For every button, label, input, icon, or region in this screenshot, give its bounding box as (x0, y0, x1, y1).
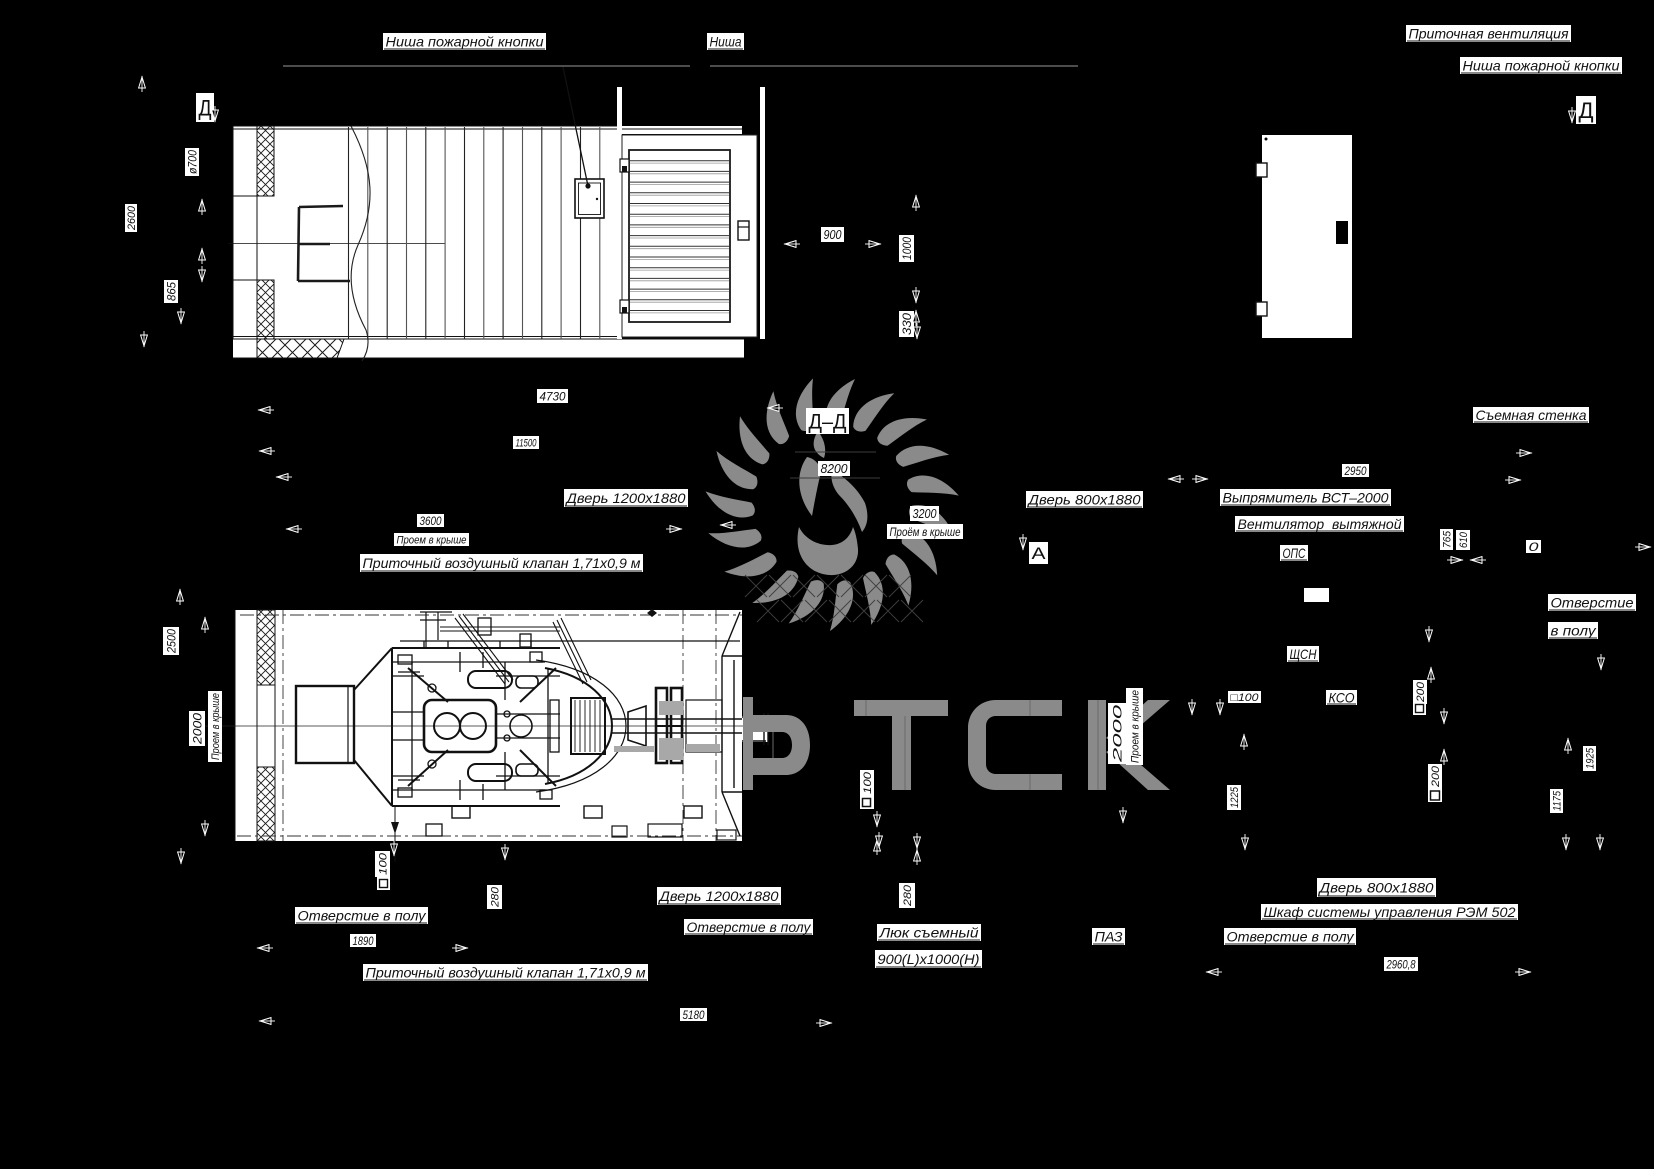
svg-text:Отверстие в полу: Отверстие в полу (1227, 929, 1355, 945)
svg-text:КСО: КСО (1329, 690, 1355, 706)
svg-text:ЩСН: ЩСН (1290, 646, 1318, 662)
svg-text:4730: 4730 (540, 389, 566, 403)
svg-text:3600: 3600 (420, 514, 442, 528)
svg-text:□100: □100 (1231, 692, 1260, 704)
svg-text:900(L)х1000(Н): 900(L)х1000(Н) (878, 951, 980, 967)
svg-text:280: 280 (490, 886, 502, 908)
svg-text:в полу: в полу (1551, 623, 1597, 639)
svg-text:100: 100 (862, 771, 874, 794)
svg-text:2000: 2000 (1110, 704, 1124, 764)
svg-text:1225: 1225 (1229, 786, 1241, 808)
svg-text:Вентилятор вытяжной: Вентилятор вытяжной (1238, 516, 1402, 532)
svg-text:Отверстие в полу: Отверстие в полу (687, 919, 812, 935)
svg-text:Отверстие: Отверстие (1551, 595, 1634, 611)
svg-text:2500: 2500 (164, 629, 178, 654)
svg-text:Приточный воздушный клапан 1,7: Приточный воздушный клапан 1,71х0,9 м (363, 555, 641, 571)
svg-text:Дверь 1200х1880: Дверь 1200х1880 (564, 490, 685, 506)
svg-text:А: А (1032, 544, 1047, 563)
svg-text:ø700: ø700 (185, 150, 199, 174)
svg-text:Дверь 800х1880: Дверь 800х1880 (1317, 880, 1433, 896)
svg-text:Д: Д (1579, 98, 1594, 123)
svg-text:200: 200 (1415, 681, 1427, 703)
svg-text:5180: 5180 (683, 1008, 705, 1022)
svg-text:280: 280 (902, 884, 914, 907)
svg-text:1925: 1925 (1585, 747, 1597, 769)
svg-text:Ниша пожарной кнопки: Ниша пожарной кнопки (1463, 58, 1620, 74)
svg-text:Д: Д (199, 95, 212, 120)
svg-text:Проём в крыше: Проём в крыше (890, 525, 961, 539)
svg-text:Дверь 800х1880: Дверь 800х1880 (1026, 492, 1140, 508)
svg-text:Проем в крыше: Проем в крыше (397, 535, 467, 547)
svg-text:2960,8: 2960,8 (1386, 957, 1416, 971)
svg-text:ПАЗ: ПАЗ (1095, 929, 1123, 945)
svg-text:Люк съемный: Люк съемный (878, 925, 978, 941)
svg-text:ОПС: ОПС (1283, 545, 1307, 561)
svg-text:Д–Д: Д–Д (809, 411, 847, 434)
svg-text:Проем в крыше: Проем в крыше (1130, 690, 1142, 763)
svg-text:Приточная вентиляция: Приточная вентиляция (1409, 26, 1570, 42)
svg-text:1890: 1890 (353, 934, 374, 948)
svg-text:Приточный воздушный клапан 1,7: Приточный воздушный клапан 1,71х0,9 м (366, 965, 646, 981)
svg-text:1175: 1175 (1552, 790, 1564, 811)
svg-text:Съемная стенка: Съемная стенка (1476, 407, 1587, 423)
svg-text:8200: 8200 (821, 461, 849, 476)
svg-text:900: 900 (824, 227, 843, 242)
svg-text:11500: 11500 (516, 438, 538, 450)
svg-text:Отверстие в полу: Отверстие в полу (298, 908, 427, 924)
svg-text:2000: 2000 (190, 713, 204, 746)
svg-text:Дверь 1200х1880: Дверь 1200х1880 (657, 888, 778, 904)
svg-text:330: 330 (900, 313, 914, 335)
svg-text:0: 0 (1529, 540, 1539, 554)
svg-text:Проем в крыше: Проем в крыше (210, 693, 222, 760)
svg-text:2950: 2950 (1344, 464, 1367, 478)
svg-text:Выпрямитель ВСТ–2000: Выпрямитель ВСТ–2000 (1223, 490, 1389, 506)
svg-text:2600: 2600 (126, 205, 138, 231)
svg-text:Шкаф системы управления РЭМ 50: Шкаф системы управления РЭМ 502 (1264, 904, 1516, 920)
svg-text:Ниша пожарной кнопки: Ниша пожарной кнопки (386, 34, 544, 50)
svg-text:610: 610 (1458, 531, 1470, 548)
svg-text:865: 865 (164, 282, 178, 301)
svg-text:3200: 3200 (913, 506, 938, 521)
svg-text:765: 765 (1442, 530, 1454, 548)
svg-text:1000: 1000 (900, 237, 914, 260)
svg-text:Ниша: Ниша (710, 34, 742, 50)
svg-text:200: 200 (1430, 765, 1442, 788)
svg-text:100: 100 (378, 852, 390, 875)
